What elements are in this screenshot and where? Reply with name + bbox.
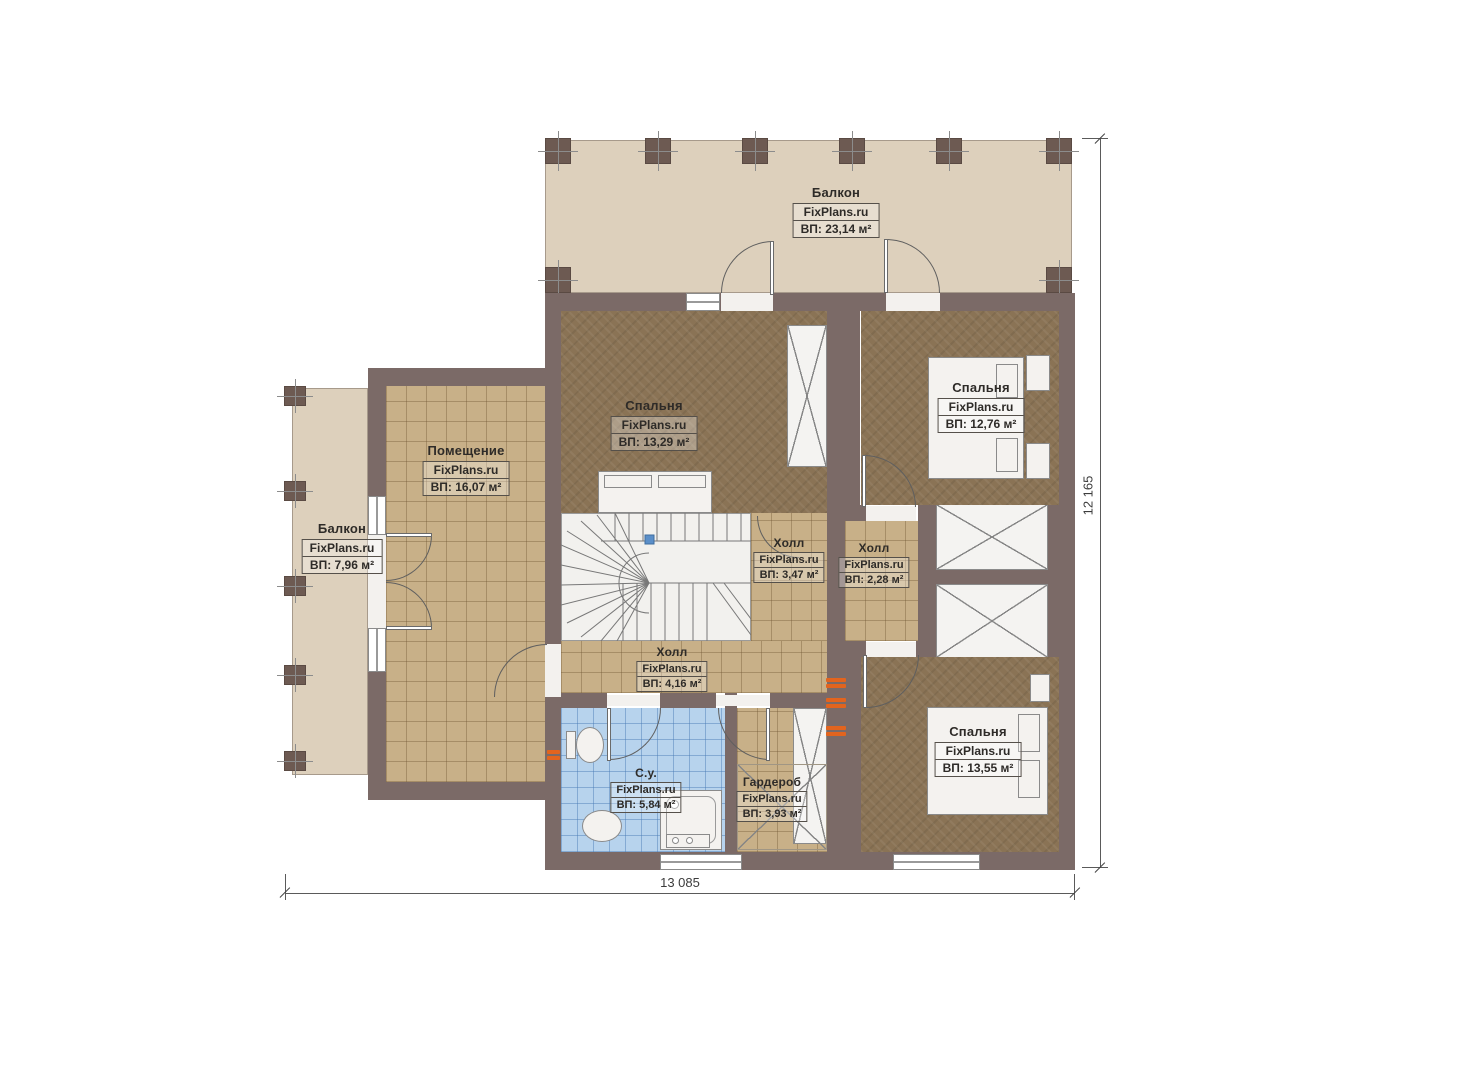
nightstand (1026, 443, 1050, 479)
radiator-symbol (826, 698, 846, 708)
brand-watermark: FixPlans.ru (424, 462, 509, 478)
room-info-box: FixPlans.ru ВП: 7,96 м² (302, 539, 383, 574)
door-opening (716, 695, 770, 706)
closet-symbol (936, 505, 1048, 570)
room-name: Холл (657, 645, 688, 659)
room-name: Холл (859, 541, 890, 555)
window (368, 628, 386, 672)
brand-watermark: FixPlans.ru (611, 783, 680, 797)
brand-watermark: FixPlans.ru (637, 662, 706, 676)
faucet-icon (672, 837, 679, 844)
room-info-box: FixPlans.ru ВП: 13,55 м² (935, 742, 1022, 777)
wall-interior (827, 293, 860, 518)
brand-watermark: FixPlans.ru (936, 743, 1021, 759)
room-area: ВП: 5,84 м² (611, 797, 680, 812)
radiator-symbol (547, 750, 560, 760)
faucet-icon (686, 837, 693, 844)
room-info-box: FixPlans.ru ВП: 3,93 м² (736, 791, 807, 822)
room-label-hall-2: Холл FixPlans.ru ВП: 2,28 м² (838, 541, 909, 588)
window (686, 293, 720, 311)
room-area: ВП: 13,55 м² (936, 759, 1021, 776)
room-name: Спальня (625, 398, 683, 413)
pillow (604, 475, 652, 488)
room-info-box: FixPlans.ru ВП: 4,16 м² (636, 661, 707, 692)
room-label-bathroom: С.у. FixPlans.ru ВП: 5,84 м² (610, 766, 681, 813)
window (893, 854, 980, 870)
room-name: Помещение (427, 443, 504, 458)
brand-watermark: FixPlans.ru (939, 399, 1024, 415)
room-label-room: Помещение FixPlans.ru ВП: 16,07 м² (423, 443, 510, 496)
radiator-symbol (826, 678, 846, 688)
room-name: Балкон (318, 521, 366, 536)
room-area: ВП: 3,47 м² (754, 567, 823, 582)
wall-interior (936, 570, 1048, 584)
column (1046, 267, 1072, 293)
room-label-wardrobe: Гардероб FixPlans.ru ВП: 3,93 м² (736, 775, 807, 822)
door-leaf (766, 708, 770, 761)
door-leaf (607, 708, 611, 761)
toilet-bowl (576, 727, 604, 763)
wall-wing-top (368, 368, 561, 386)
wall-interior (561, 693, 607, 708)
column (545, 138, 571, 164)
floor-plan-canvas: Балкон FixPlans.ru ВП: 23,14 м² Спальня … (0, 0, 1474, 1080)
column (284, 576, 306, 596)
dimension-height: 12 165 (1081, 466, 1096, 526)
wall-interior (916, 641, 936, 657)
column (645, 138, 671, 164)
room-info-box: FixPlans.ru ВП: 5,84 м² (610, 782, 681, 813)
wall-wing-bottom (368, 782, 561, 800)
closet-symbol (936, 584, 1048, 657)
column (545, 267, 571, 293)
wall-right (1059, 293, 1075, 870)
door-opening (866, 506, 916, 521)
room-info-box: FixPlans.ru ВП: 23,14 м² (793, 203, 880, 238)
wall-interior (660, 693, 716, 708)
wardrobe-symbol (787, 325, 827, 467)
room-name: С.у. (635, 766, 657, 780)
door-leaf (386, 626, 432, 630)
door-leaf (884, 239, 888, 293)
column (284, 751, 306, 771)
nightstand (1030, 674, 1050, 702)
column (1046, 138, 1072, 164)
room-name: Гардероб (743, 775, 801, 789)
room-label-balcony-top: Балкон FixPlans.ru ВП: 23,14 м² (793, 185, 880, 238)
brand-watermark: FixPlans.ru (754, 553, 823, 567)
pillow (658, 475, 706, 488)
brand-watermark: FixPlans.ru (794, 204, 879, 220)
brand-watermark: FixPlans.ru (737, 792, 806, 806)
staircase (561, 513, 751, 641)
door-opening (721, 293, 773, 311)
room-name: Спальня (949, 724, 1007, 739)
wall-interior (1048, 505, 1059, 657)
room-info-box: FixPlans.ru ВП: 3,47 м² (753, 552, 824, 583)
toilet (566, 731, 576, 759)
window (660, 854, 742, 870)
room-info-box: FixPlans.ru ВП: 16,07 м² (423, 461, 510, 496)
door-leaf (770, 241, 774, 295)
wall-interior (770, 693, 827, 708)
room-name: Спальня (952, 380, 1010, 395)
room-info-box: FixPlans.ru ВП: 12,76 м² (938, 398, 1025, 433)
brand-watermark: FixPlans.ru (839, 558, 908, 572)
room-area: ВП: 23,14 м² (794, 220, 879, 237)
door-leaf (862, 455, 866, 507)
room-label-bedroom-top-left: Спальня FixPlans.ru ВП: 13,29 м² (611, 398, 698, 451)
wall-interior (827, 641, 866, 657)
column (284, 665, 306, 685)
room-label-hall-1: Холл FixPlans.ru ВП: 3,47 м² (753, 536, 824, 583)
column (284, 386, 306, 406)
radiator-symbol (826, 726, 846, 736)
room-area: ВП: 3,93 м² (737, 806, 806, 821)
room-info-box: FixPlans.ru ВП: 13,29 м² (611, 416, 698, 451)
wall-interior (918, 505, 936, 657)
room-name: Холл (774, 536, 805, 550)
door-opening (886, 293, 940, 311)
wall-interior (845, 505, 866, 521)
column (936, 138, 962, 164)
room-label-balcony-left: Балкон FixPlans.ru ВП: 7,96 м² (302, 521, 383, 574)
room-area: ВП: 2,28 м² (839, 572, 908, 587)
column (742, 138, 768, 164)
room-area: ВП: 4,16 м² (637, 676, 706, 691)
brand-watermark: FixPlans.ru (303, 540, 382, 556)
column (284, 481, 306, 501)
room-info-box: FixPlans.ru ВП: 2,28 м² (838, 557, 909, 588)
pillow (996, 438, 1018, 472)
room-area: ВП: 7,96 м² (303, 556, 382, 573)
column (839, 138, 865, 164)
dimension-line-right (1100, 138, 1101, 868)
door-leaf (386, 533, 432, 537)
room-name: Балкон (812, 185, 860, 200)
wall-top (545, 293, 1075, 311)
brand-watermark: FixPlans.ru (612, 417, 697, 433)
wall-bottom (545, 852, 1075, 870)
nightstand (1026, 355, 1050, 391)
room-area: ВП: 12,76 м² (939, 415, 1024, 432)
room-label-bedroom-top-right: Спальня FixPlans.ru ВП: 12,76 м² (938, 380, 1025, 433)
door-leaf (863, 655, 867, 708)
sink (582, 810, 622, 842)
dimension-width: 13 085 (285, 875, 1075, 890)
dimension-extension (1082, 867, 1108, 868)
room-area: ВП: 16,07 м² (424, 478, 509, 495)
room-area: ВП: 13,29 м² (612, 433, 697, 450)
room-label-hall-3: Холл FixPlans.ru ВП: 4,16 м² (636, 645, 707, 692)
room-label-bedroom-bottom-right: Спальня FixPlans.ru ВП: 13,55 м² (935, 724, 1022, 777)
door-opening (607, 695, 660, 706)
door-opening (545, 644, 561, 697)
dimension-extension (1082, 138, 1108, 139)
dimension-line-bottom (285, 893, 1075, 894)
